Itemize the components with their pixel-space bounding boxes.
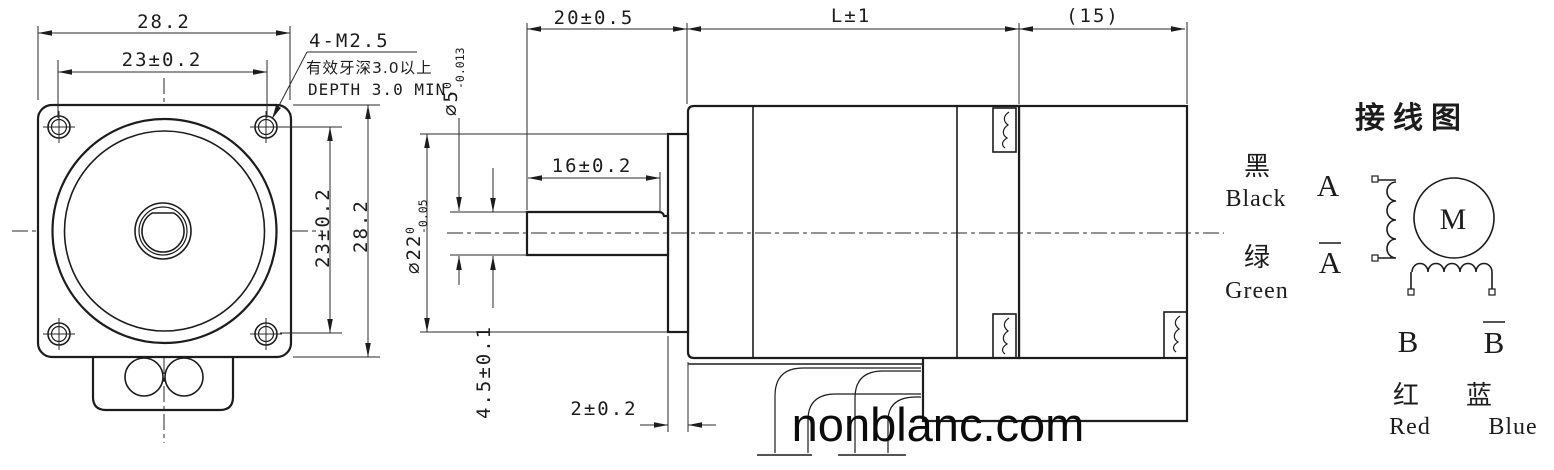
cable-connector-outline — [93, 357, 233, 410]
dim-boss-diameter-tol-lower: -0.05 — [416, 199, 430, 234]
thread-callout-label: 4-M2.5 — [309, 30, 390, 52]
dim-front-outer-width-label: 28.2 — [137, 11, 191, 33]
phase-a-wire2-en: Green — [1225, 278, 1289, 304]
wiring-title: 接线图 — [1355, 102, 1469, 135]
dim-front-outer-height-label: 28.2 — [350, 199, 372, 253]
dim-shaft-diameter-tol-upper: 0 — [440, 82, 454, 89]
dim-boss-diameter-label: ⌀22 — [403, 234, 425, 274]
drawing-sheet: 28.2 23±0.2 4-M2.5 有效牙深3.0以上 DEPTH 3.0 M… — [0, 0, 1554, 470]
dim-rear-length-label: (15) — [1066, 5, 1120, 27]
thread-callout: 4-M2.5 有效牙深3.0以上 DEPTH 3.0 MIN. — [272, 30, 457, 119]
phase-a-wire1-cn: 黑 — [1244, 152, 1270, 181]
phase-b-wire1-en: Red — [1389, 414, 1431, 440]
phase-a-wire1-en: Black — [1226, 186, 1287, 212]
side-view: 20±0.5 L±1 (15) 16±0.2 ⌀5 0 -0.013 — [403, 5, 1224, 455]
phase-a-wire2-cn: 绿 — [1244, 243, 1270, 272]
dim-flat-length-label: 16±0.2 — [552, 155, 633, 177]
dim-front-hole-spacing-v-label: 23±0.2 — [312, 187, 334, 268]
technical-drawing: 28.2 23±0.2 4-M2.5 有效牙深3.0以上 DEPTH 3.0 M… — [0, 0, 1554, 470]
cable-wire-hole-right — [165, 358, 203, 396]
phase-b-label: B — [1398, 324, 1419, 359]
dim-flat-height-label: 4.5±0.1 — [473, 325, 495, 419]
phase-a-terminal-bottom — [1372, 255, 1378, 261]
dim-shaft-diameter-tol-lower: -0.013 — [453, 47, 467, 89]
dim-front-hole-spacing-h-label: 23±0.2 — [122, 49, 203, 71]
dim-flat-length: 16±0.2 — [528, 155, 660, 211]
dim-body-length-label: L±1 — [831, 5, 871, 27]
phase-b-bar-label: B — [1484, 325, 1505, 360]
dim-shaft-length-label: 20±0.5 — [554, 7, 635, 29]
cable-wire-hole-left — [125, 358, 163, 396]
rear-housing-outline — [1019, 106, 1187, 358]
dim-boss-diameter-tol-upper: 0 — [403, 227, 417, 234]
dim-shaft-length: 20±0.5 — [527, 7, 687, 210]
flange-outline — [38, 105, 291, 357]
phase-b-wire1-cn: 红 — [1393, 381, 1419, 410]
dim-body-length: L±1 — [687, 5, 1019, 104]
thread-note-cn: 有效牙深3.0以上 — [306, 59, 433, 77]
motor-symbol-label: M — [1440, 203, 1467, 236]
watermark: nonblanc.com — [792, 398, 1085, 451]
phase-b-terminal-left — [1408, 289, 1414, 295]
thread-note-en: DEPTH 3.0 MIN. — [308, 80, 457, 99]
body-outline — [688, 106, 1019, 358]
dim-flat-height: 4.5±0.1 — [473, 168, 495, 419]
wiring-diagram: 接线图 M 黑 Black A 绿 A Green B B 红 Red 蓝 Bl… — [1225, 102, 1537, 440]
dim-rear-length: (15) — [1019, 5, 1187, 104]
phase-a-terminal-top — [1372, 176, 1378, 182]
front-view: 28.2 23±0.2 4-M2.5 有效牙深3.0以上 DEPTH 3.0 M… — [12, 11, 457, 443]
phase-b-wire2-en: Blue — [1488, 414, 1537, 440]
phase-a-bar-label: A — [1319, 245, 1342, 280]
phase-b-wire2-cn: 蓝 — [1466, 381, 1492, 410]
dim-boss-thickness-label: 2±0.2 — [570, 398, 637, 420]
phase-b-terminal-right — [1489, 289, 1495, 295]
phase-a-label: A — [1317, 168, 1340, 203]
phase-b-coil — [1408, 264, 1495, 296]
dim-shaft-diameter: ⌀5 0 -0.013 — [440, 47, 527, 285]
dim-shaft-diameter-label: ⌀5 — [440, 89, 462, 116]
phase-a-coil — [1372, 176, 1396, 261]
